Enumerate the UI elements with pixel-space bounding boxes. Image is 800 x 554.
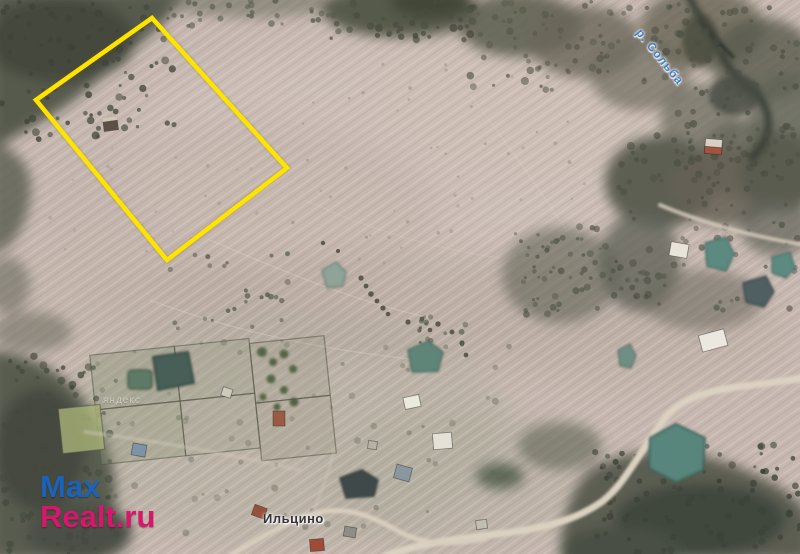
parcel-shed [102, 116, 119, 132]
satellite-map[interactable]: р. Сольба Ильцино яндекс Max Realt.ru [0, 0, 800, 554]
site-logo-line1: Max [40, 472, 155, 502]
site-logo: Max Realt.ru [40, 472, 155, 532]
site-logo-line2: Realt.ru [40, 502, 155, 532]
map-canvas [0, 0, 800, 554]
